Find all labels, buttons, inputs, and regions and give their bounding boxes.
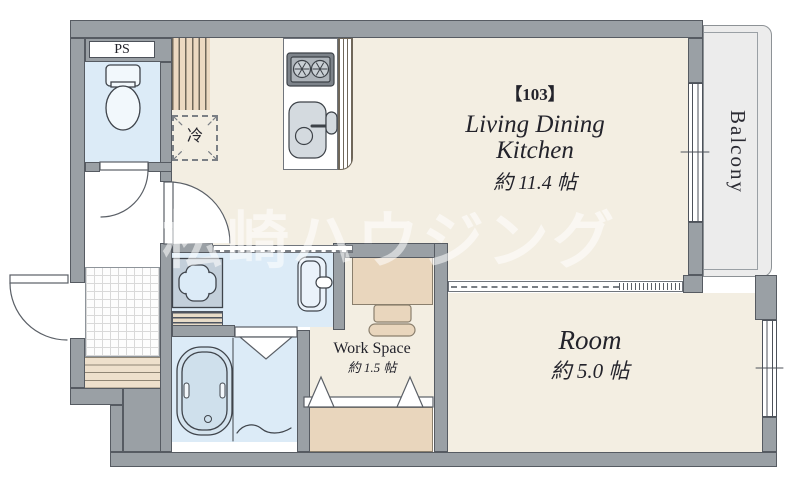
ldk-area: 約 11.4 帖 [430, 173, 640, 194]
door-swing-icon-ldk [164, 182, 230, 244]
kitchen-sink-icon [289, 102, 337, 158]
floor-plan: PS [0, 0, 800, 483]
ldk-name-line1: Living Dining [430, 112, 640, 138]
pipe-space-label: PS [114, 42, 130, 57]
workspace-name: Work Space [313, 341, 431, 358]
unit-number: 【103】 [430, 86, 640, 104]
gas-stove-icon [287, 53, 334, 86]
folding-door-icon-closet [304, 377, 433, 407]
pipe-space-box: PS [89, 41, 155, 58]
workspace-area: 約 1.5 帖 [313, 361, 431, 375]
room-area: 約 5.0 帖 [470, 360, 710, 382]
bathtub-icon [177, 338, 291, 441]
folding-door-icon-bath [235, 327, 297, 359]
workspace-label-block: Work Space 約 1.5 帖 [313, 341, 431, 374]
toilet-icon [106, 65, 140, 130]
door-swing-icon-toilet [100, 162, 148, 217]
balcony-label: Balcony [725, 87, 749, 217]
ldk-name-line2: Kitchen [430, 138, 640, 164]
chair-icon [369, 305, 415, 336]
ldk-label-block: 【103】 Living Dining Kitchen 約 11.4 帖 [430, 86, 640, 194]
room-label-block: Room 約 5.0 帖 [470, 326, 710, 382]
washing-machine-pan-icon [173, 259, 223, 308]
refrigerator-label: 冷 [180, 129, 210, 146]
door-swing-icon-entrance [10, 275, 68, 340]
room-name: Room [470, 326, 710, 354]
vanity-sink-icon [298, 257, 332, 311]
symbols-layer [0, 0, 800, 483]
